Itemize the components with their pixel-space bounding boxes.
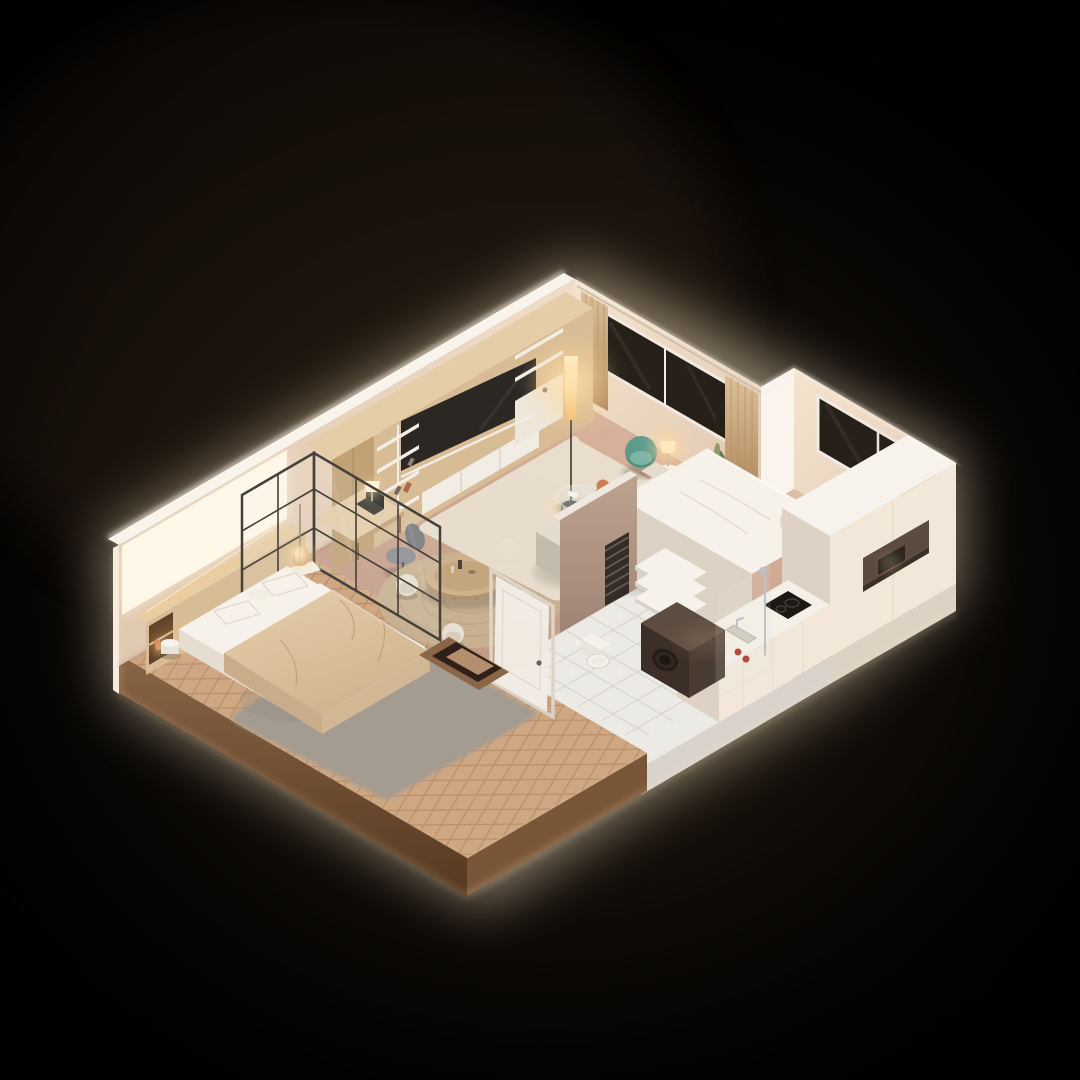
- shower-head: [759, 567, 767, 575]
- glass-pane-front: [314, 453, 440, 640]
- living-floor: [299, 400, 923, 764]
- niche-shelf: [863, 520, 929, 586]
- floor-lamp-glow: [523, 334, 619, 430]
- washing-machine: [641, 602, 725, 698]
- drawer-band: [422, 425, 539, 515]
- bedroom-platform: [119, 550, 647, 896]
- block-riser: [818, 435, 908, 528]
- tv-wall-unit: [305, 292, 593, 573]
- sofa-back-top: [578, 468, 707, 544]
- kitchen-window: [818, 396, 938, 521]
- wall-step-face: [761, 368, 794, 508]
- window-nook: [732, 497, 837, 538]
- candle: [451, 566, 454, 573]
- nook-chair: [765, 502, 786, 523]
- niche-panel: [878, 545, 905, 575]
- sliding-pane: [878, 431, 938, 521]
- book: [394, 486, 402, 496]
- open-shelves: [377, 423, 419, 529]
- led-strip: [146, 524, 287, 617]
- table-lamp-shade: [660, 441, 676, 453]
- vignette: [0, 0, 1080, 1080]
- figure-torso: [592, 488, 608, 518]
- door-frame: [491, 570, 553, 717]
- laptop-screen: [366, 485, 384, 509]
- entry-glow: [498, 623, 542, 667]
- washer-drum: [650, 646, 680, 673]
- sitting-figure: [585, 480, 622, 531]
- headboard-unit: [134, 519, 310, 675]
- vase: [543, 388, 548, 393]
- desk-top: [314, 488, 404, 541]
- apartment-halo: [104, 262, 960, 908]
- glass-pane-back: [242, 453, 314, 608]
- entry: [491, 570, 560, 720]
- faucet: [737, 618, 743, 628]
- tile-grid: [493, 574, 781, 735]
- floor-slab: [641, 584, 956, 795]
- pendant-lamp: [285, 504, 315, 571]
- dining-chair: [510, 590, 532, 616]
- desk-lamp: [364, 481, 380, 492]
- tv-shelf: [401, 414, 536, 477]
- induction-hob: [764, 591, 812, 619]
- unit-front: [332, 308, 593, 573]
- nw-wall-face: [119, 279, 575, 666]
- floor-lamp: [545, 356, 597, 515]
- isometric-apartment-render: [0, 0, 1080, 1080]
- jute-rug: [378, 552, 562, 648]
- armchair: [622, 436, 660, 479]
- block-sw-face: [620, 498, 752, 654]
- wing-wall-top-rim: [794, 368, 965, 468]
- apartment: [108, 273, 965, 896]
- orange-book: [154, 639, 162, 650]
- book: [403, 482, 412, 493]
- platform-side-se: [467, 753, 647, 896]
- door-handle: [536, 660, 541, 665]
- floating-shelves: [635, 548, 707, 626]
- table-top: [425, 556, 505, 596]
- nw-wall-top-rim: [108, 273, 575, 545]
- glass-top: [556, 485, 604, 509]
- table-lamp-glow: [644, 423, 692, 471]
- headboard-front: [146, 530, 305, 675]
- warm-aura: [0, 0, 1080, 1080]
- dining-chair: [442, 623, 464, 649]
- shelf-niche: [149, 612, 173, 665]
- living-room: [533, 356, 737, 597]
- double-bed: [179, 561, 430, 734]
- figure-legs: [590, 512, 618, 526]
- tv-screen: [401, 358, 536, 471]
- wardrobe-column: [332, 436, 374, 573]
- nook-table: [788, 497, 836, 526]
- shower-valve: [735, 649, 742, 656]
- glowing-wall-panel: [122, 450, 287, 615]
- nook-chair: [732, 517, 753, 538]
- sofa-pillow: [618, 496, 644, 512]
- armchair-shell: [625, 436, 657, 468]
- figure-head: [597, 480, 610, 493]
- dining-area: [378, 538, 562, 649]
- duvet: [224, 590, 430, 715]
- sink: [726, 625, 756, 643]
- bedside-table: [160, 639, 180, 660]
- ne-wall-face: [575, 279, 761, 508]
- bath-wall-rim: [553, 471, 637, 520]
- sofa-back-face: [593, 477, 707, 586]
- bowl: [468, 570, 476, 574]
- chair-seat: [386, 547, 416, 565]
- mattress: [179, 566, 425, 710]
- towel-radiator: [605, 532, 629, 606]
- ne-wall-top-rim: [575, 279, 770, 392]
- book: [407, 458, 414, 467]
- back-cushion: [246, 586, 278, 602]
- home-office: [314, 476, 429, 584]
- countertop: [677, 580, 830, 670]
- wing-wall-face: [794, 368, 956, 584]
- curtain-right: [725, 375, 758, 499]
- figure-arm: [585, 500, 596, 508]
- rim-lights: [108, 272, 956, 896]
- nw-wall: [108, 273, 575, 694]
- tall-box-sw-face: [782, 508, 830, 657]
- lighting: [108, 272, 956, 896]
- dining-chair: [396, 574, 418, 600]
- lamp-shade: [564, 356, 578, 420]
- front-door: [494, 576, 549, 712]
- sofa-pillow: [596, 509, 622, 525]
- window-nook-floor: [761, 489, 956, 603]
- armchair-seat: [630, 451, 652, 465]
- sofa-seat-cushions: [543, 477, 691, 563]
- kitchen-block: [620, 435, 956, 722]
- office-chair: [384, 521, 429, 584]
- floor-trough: [419, 637, 509, 690]
- table-lamp: [660, 441, 676, 466]
- background: [0, 0, 1080, 1080]
- desk-lamp-glow: [358, 476, 384, 502]
- trough-recess: [432, 642, 502, 682]
- tall-box-top: [782, 435, 956, 536]
- chair-back: [401, 521, 428, 554]
- loft-bed-mattress: [620, 449, 838, 574]
- sofa: [533, 462, 717, 597]
- left-cabinet: [515, 373, 563, 445]
- pillow: [262, 573, 308, 596]
- brown-haze: [0, 0, 730, 620]
- headboard-top: [134, 524, 305, 623]
- chair-base: [389, 573, 417, 584]
- cabinet-run: [677, 580, 830, 722]
- tall-box-se-face: [830, 463, 956, 657]
- ne-wall: [575, 279, 965, 584]
- wall-end-cap: [113, 545, 119, 694]
- herringbone-parquet: [119, 550, 647, 858]
- bath-cut-wall: [560, 475, 637, 633]
- floors: [299, 400, 956, 768]
- shower-valve: [743, 656, 750, 663]
- laptop-base: [356, 498, 384, 515]
- bottle: [458, 560, 462, 569]
- curtain-left: [581, 291, 608, 411]
- coffee-table: [556, 485, 604, 520]
- dining-table: [425, 556, 505, 599]
- black-void: [0, 0, 1080, 1080]
- living-window: [602, 311, 728, 442]
- potted-plant: [698, 443, 737, 493]
- pendant-glow: [282, 536, 318, 572]
- shower: [716, 563, 770, 699]
- bedroom: [160, 504, 536, 799]
- side-table: [658, 465, 678, 484]
- bathroom: [553, 471, 770, 699]
- shower-glass: [716, 563, 770, 699]
- curtain-rod: [577, 286, 764, 394]
- grey-shag-rug: [233, 625, 536, 799]
- back-cushion: [289, 561, 321, 577]
- unit-top: [305, 292, 593, 460]
- bed-cube: [780, 508, 816, 541]
- paper-holder: [575, 641, 580, 646]
- plant-pot: [706, 482, 720, 493]
- pillow: [214, 601, 260, 624]
- sheet-band: [212, 583, 335, 655]
- sofa-arm-ne: [641, 462, 710, 502]
- glass-partition: [242, 453, 440, 640]
- toilet: [575, 633, 611, 668]
- sofa-arm-sw: [536, 523, 605, 564]
- platform-side-sw: [119, 655, 467, 896]
- cabinet-fronts: [719, 605, 830, 722]
- niche-glow: [149, 635, 173, 659]
- game-controller: [567, 490, 578, 498]
- bathroom-entry-tiles: [485, 588, 793, 768]
- dining-chair: [497, 538, 519, 564]
- living-rug: [419, 436, 710, 600]
